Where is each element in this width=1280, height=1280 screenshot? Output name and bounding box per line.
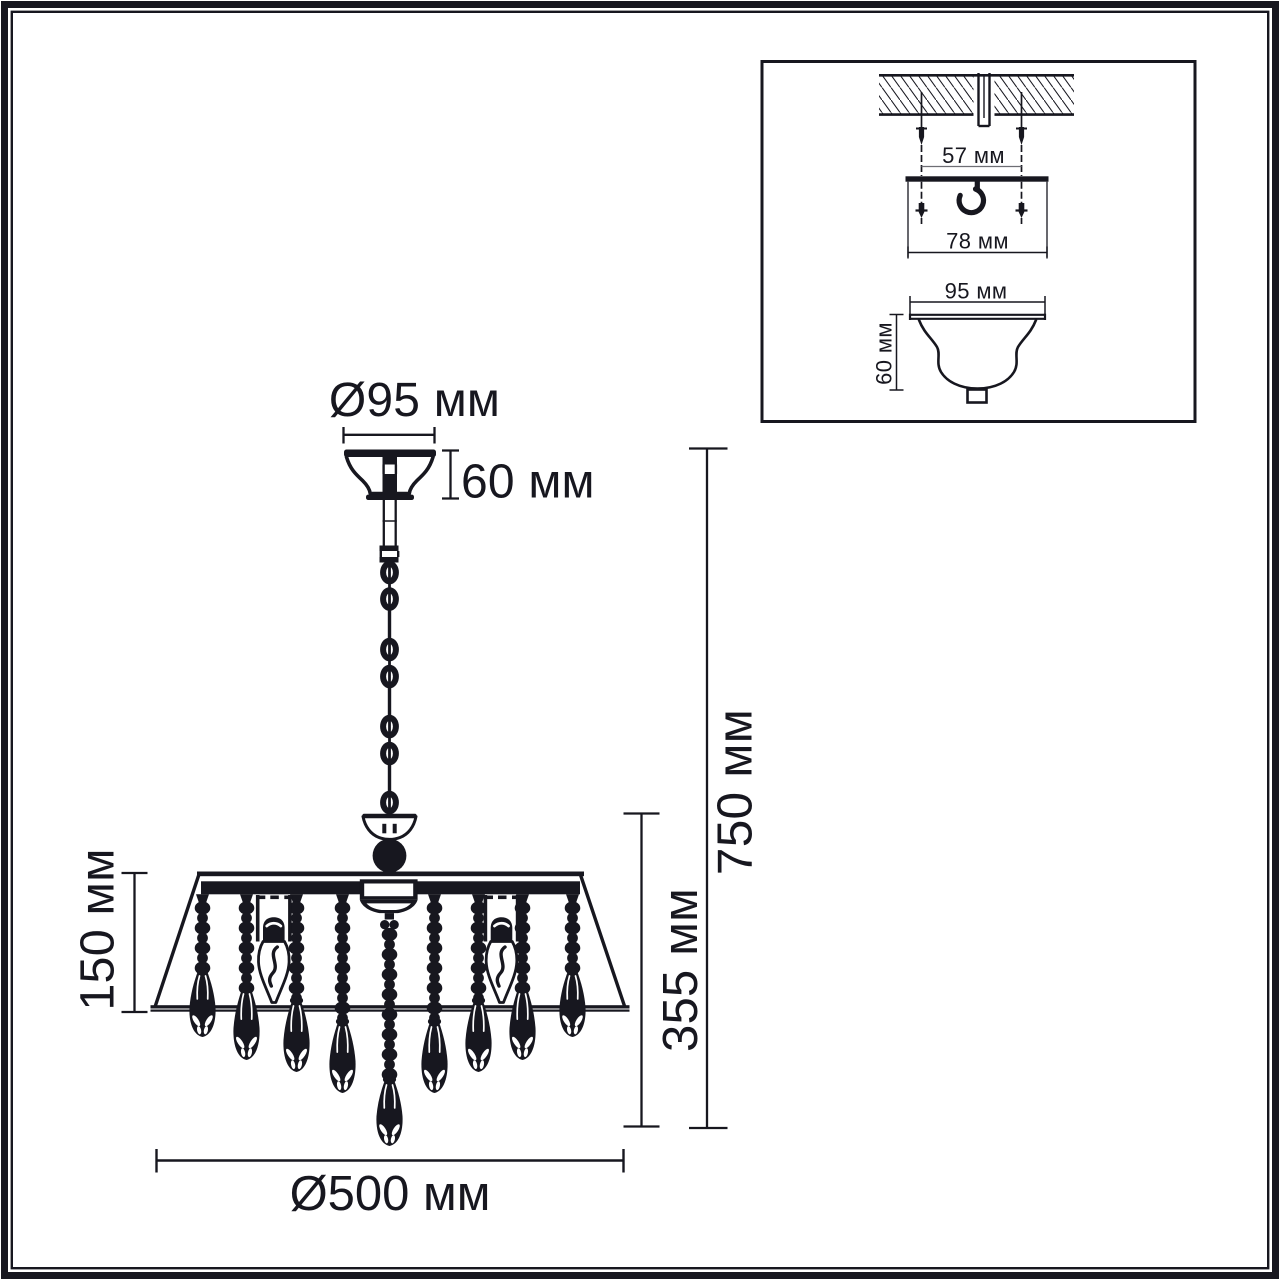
svg-text:Ø500 мм: Ø500 мм (290, 1167, 491, 1221)
svg-text:57 мм: 57 мм (942, 143, 1005, 168)
svg-text:60 мм: 60 мм (461, 456, 595, 509)
svg-text:Ø95 мм: Ø95 мм (329, 374, 500, 427)
svg-text:95 мм: 95 мм (945, 279, 1008, 304)
svg-text:78 мм: 78 мм (946, 229, 1009, 254)
svg-text:60 мм: 60 мм (872, 322, 897, 385)
svg-text:355 мм: 355 мм (654, 888, 708, 1052)
svg-text:150 мм: 150 мм (71, 848, 125, 1010)
svg-text:750 мм: 750 мм (708, 709, 763, 875)
